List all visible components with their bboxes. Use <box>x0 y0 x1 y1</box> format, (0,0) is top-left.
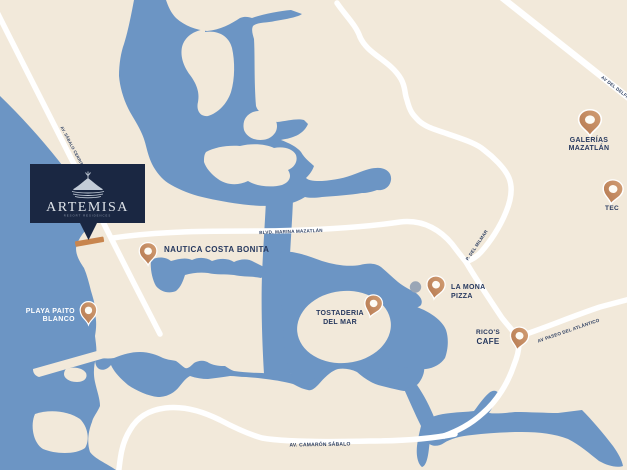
svg-text:LA MONA: LA MONA <box>451 284 486 291</box>
svg-text:RICO'S: RICO'S <box>476 329 500 336</box>
svg-text:GALERÍAS: GALERÍAS <box>570 135 609 144</box>
svg-text:MAZATLÁN: MAZATLÁN <box>569 143 610 152</box>
svg-text:TEC: TEC <box>605 205 619 212</box>
svg-text:TOSTADERIA: TOSTADERIA <box>316 310 364 317</box>
svg-text:PIZZA: PIZZA <box>451 293 473 300</box>
svg-text:BLANCO: BLANCO <box>43 316 75 323</box>
svg-text:PLAYA PAITO: PLAYA PAITO <box>26 308 75 315</box>
svg-text:DEL MAR: DEL MAR <box>323 319 357 326</box>
svg-text:NAUTICA COSTA BONITA: NAUTICA COSTA BONITA <box>164 245 269 254</box>
svg-text:CAFE: CAFE <box>477 337 500 346</box>
svg-text:RESORT RESIDENCES: RESORT RESIDENCES <box>64 214 112 218</box>
